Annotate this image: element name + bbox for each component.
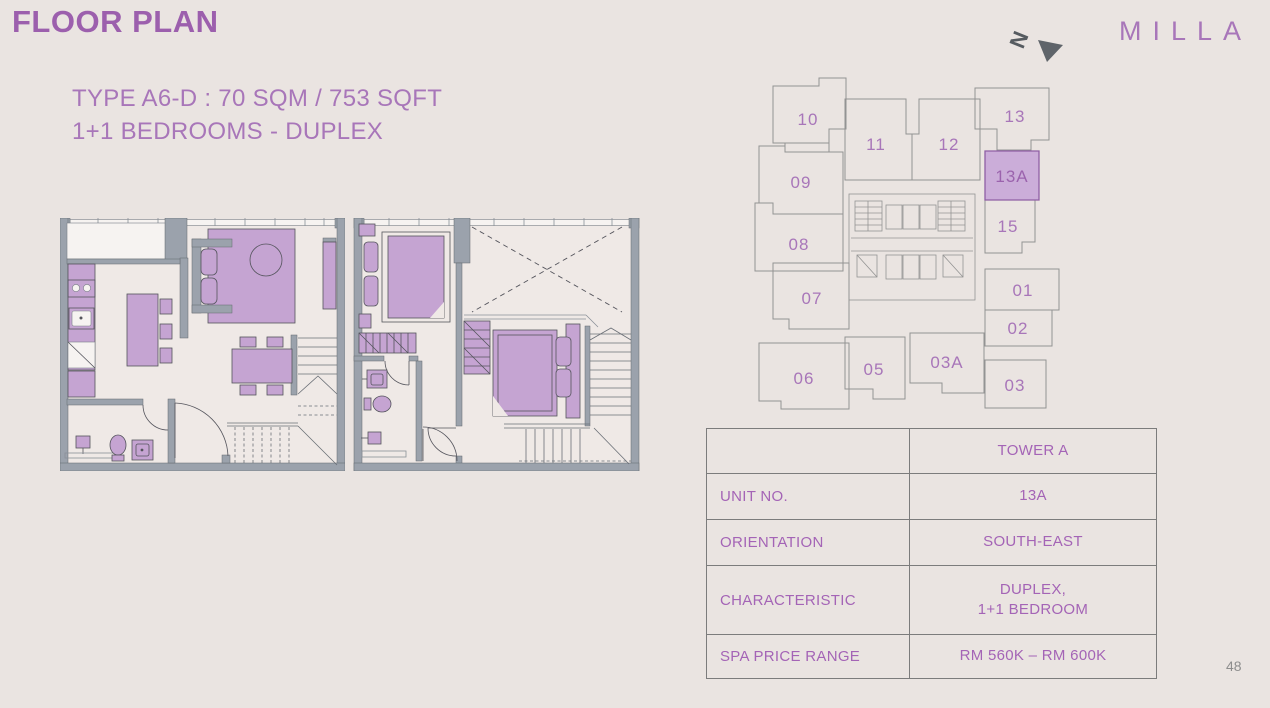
table-label-orientation: ORIENTATION — [707, 520, 910, 566]
floor-plan-slide: FLOOR PLAN TYPE A6-D : 70 SQM / 753 SQFT… — [0, 0, 1270, 708]
nightstand — [359, 224, 375, 236]
table-row: SPA PRICE RANGE RM 560K – RM 600K — [707, 635, 1157, 679]
table-label-tower — [707, 429, 910, 474]
wash-basin — [132, 440, 153, 460]
table-value-orientation: SOUTH-EAST — [910, 520, 1157, 566]
table-row: TOWER A — [707, 429, 1157, 474]
key-plan-unit-label-13: 13 — [1005, 107, 1026, 126]
round-table — [250, 244, 282, 276]
nightstand — [359, 314, 371, 328]
page-title: FLOOR PLAN — [12, 4, 219, 40]
table-row: UNIT NO. 13A — [707, 474, 1157, 520]
key-plan-unit-label-07: 07 — [802, 289, 823, 308]
fridge — [68, 342, 95, 368]
key-plan-unit-label-05: 05 — [864, 360, 885, 379]
table-label-spa-price: SPA PRICE RANGE — [707, 635, 910, 679]
kitchen-sink — [69, 308, 94, 329]
key-plan-unit-label-15: 15 — [998, 217, 1019, 236]
unit-type-heading: TYPE A6-D : 70 SQM / 753 SQFT 1+1 BEDROO… — [72, 82, 442, 148]
table-value-characteristic: DUPLEX, 1+1 BEDROOM — [910, 566, 1157, 635]
floor-plan-lower-level — [60, 218, 345, 471]
key-plan-unit-label-11: 11 — [866, 135, 886, 154]
kitchen-cabinet — [68, 371, 95, 397]
unit-info-table: TOWER A UNIT NO. 13A ORIENTATION SOUTH-E… — [706, 428, 1157, 679]
toilet — [110, 435, 126, 461]
key-plan-core — [849, 194, 975, 300]
north-arrow-icon: N — [1000, 18, 1070, 70]
kitchen-island — [127, 294, 172, 366]
table-value-spa-price: RM 560K – RM 600K — [910, 635, 1157, 679]
table-value-unit-no: 13A — [910, 474, 1157, 520]
key-plan-unit-label-01: 01 — [1013, 281, 1034, 300]
key-plan-unit-label-03: 03 — [1005, 376, 1026, 395]
table-row: ORIENTATION SOUTH-EAST — [707, 520, 1157, 566]
unit-type-line1: TYPE A6-D : 70 SQM / 753 SQFT — [72, 82, 442, 115]
key-plan-unit-label-09: 09 — [791, 173, 812, 192]
north-label: N — [1004, 28, 1033, 52]
wardrobe — [359, 333, 416, 353]
key-plan-unit-label-03a: 03A — [930, 353, 963, 372]
table-label-unit-no: UNIT NO. — [707, 474, 910, 520]
brand-logo: MILLA — [1119, 16, 1252, 47]
closet — [464, 321, 490, 374]
key-plan-unit-label-02: 02 — [1008, 319, 1029, 338]
page-number: 48 — [1226, 658, 1242, 674]
key-plan-unit-label-12: 12 — [939, 135, 960, 154]
tv-console — [323, 238, 336, 309]
key-plan-unit-label-06: 06 — [794, 369, 815, 388]
north-arrow-head — [1038, 40, 1063, 62]
table-value-tower: TOWER A — [910, 429, 1157, 474]
unit-type-line2: 1+1 BEDROOMS - DUPLEX — [72, 115, 442, 148]
table-row: CHARACTERISTIC DUPLEX, 1+1 BEDROOM — [707, 566, 1157, 635]
floor-plan-upper-level — [353, 218, 640, 471]
key-plan-unit-label-13a: 13A — [995, 167, 1028, 186]
bed-master — [493, 324, 580, 418]
toilet — [364, 396, 391, 412]
table-label-characteristic: CHARACTERISTIC — [707, 566, 910, 635]
key-plan-unit-label-08: 08 — [789, 235, 810, 254]
key-plan: 10 11 12 13 09 13A 08 15 07 01 02 06 05 … — [745, 72, 1065, 417]
key-plan-unit-label-10: 10 — [798, 110, 819, 129]
